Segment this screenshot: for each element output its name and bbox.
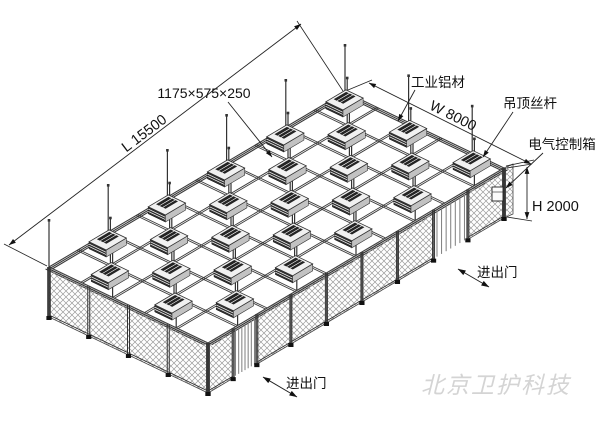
ffu-unit <box>275 256 312 283</box>
ffu-unit <box>330 155 367 182</box>
height-dim-label: H 2000 <box>532 199 579 215</box>
width-ext-line-left <box>348 80 372 90</box>
height-ext-line-bottom <box>507 217 532 221</box>
ffu-unit <box>392 153 429 180</box>
ffu-unit <box>148 195 185 222</box>
ffu-size-label: 1175×575×250 <box>157 85 250 101</box>
isometric-cleanroom-diagram: 1175×575×250 工业铝材 W 8000 L 15500 吊顶丝杆 电气… <box>0 0 600 425</box>
ffu-unit <box>153 260 190 287</box>
ffu-unit <box>89 230 126 257</box>
mesh-wall-left <box>46 267 210 396</box>
ffu-unit <box>267 125 304 152</box>
ceiling-rod-leader <box>483 112 513 157</box>
length-ext-line-right <box>297 21 343 91</box>
ffu-unit <box>328 123 365 150</box>
ffu-unit <box>210 193 247 220</box>
ffu-unit <box>273 223 310 250</box>
aluminum-leader <box>398 90 415 121</box>
ffu-unit <box>150 228 187 255</box>
door-strip-curtain <box>437 194 464 256</box>
electrical-box-label: 电气控制箱 <box>528 137 596 152</box>
ffu-unit <box>91 263 128 290</box>
diagram-canvas: 1175×575×250 工业铝材 W 8000 L 15500 吊顶丝杆 电气… <box>0 0 600 425</box>
width-dim-label: W 8000 <box>427 98 479 135</box>
length-dim-label: L 15500 <box>119 112 170 156</box>
ffu-unit <box>269 158 306 185</box>
ffu-unit <box>389 120 426 147</box>
ffu-unit <box>271 190 308 217</box>
ffu-unit <box>155 293 192 320</box>
door-side-label: 进出门 <box>477 265 518 280</box>
company-watermark: 北京卫护科技 <box>421 372 572 398</box>
ffu-unit <box>207 160 244 187</box>
ffu-unit <box>332 188 369 215</box>
ffu-unit <box>214 258 251 285</box>
electrical-control-box <box>492 187 503 201</box>
ceiling-rod-label: 吊顶丝杆 <box>503 96 557 111</box>
ffu-unit <box>216 291 253 318</box>
industrial-aluminum-label: 工业铝材 <box>411 75 465 90</box>
ffu-unit <box>394 186 431 213</box>
ffu-unit <box>335 221 372 248</box>
length-ext-line-left <box>4 244 47 266</box>
ffu-unit <box>326 90 363 117</box>
frame-structure <box>46 44 513 396</box>
door-front-label: 进出门 <box>286 376 327 391</box>
ffu-unit <box>212 225 249 252</box>
